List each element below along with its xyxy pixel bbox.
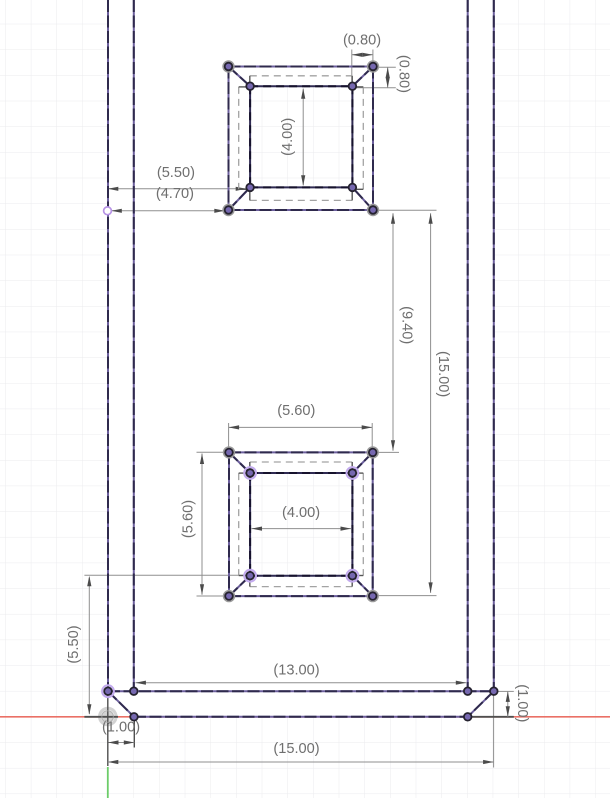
svg-text:(5.50): (5.50)	[157, 165, 195, 181]
svg-text:(4.00): (4.00)	[280, 118, 296, 156]
svg-text:(9.40): (9.40)	[398, 306, 414, 344]
svg-text:(1.00): (1.00)	[514, 684, 530, 722]
svg-text:(4.70): (4.70)	[156, 186, 194, 202]
svg-text:(15.00): (15.00)	[435, 351, 451, 397]
svg-text:(5.50): (5.50)	[66, 625, 82, 663]
svg-text:(0.80): (0.80)	[343, 33, 381, 49]
svg-text:(4.00): (4.00)	[282, 505, 320, 521]
svg-text:(0.80): (0.80)	[395, 55, 411, 93]
svg-text:(5.60): (5.60)	[277, 403, 315, 419]
svg-text:(15.00): (15.00)	[273, 741, 319, 757]
svg-text:(13.00): (13.00)	[273, 662, 319, 678]
svg-text:(5.60): (5.60)	[180, 500, 196, 538]
